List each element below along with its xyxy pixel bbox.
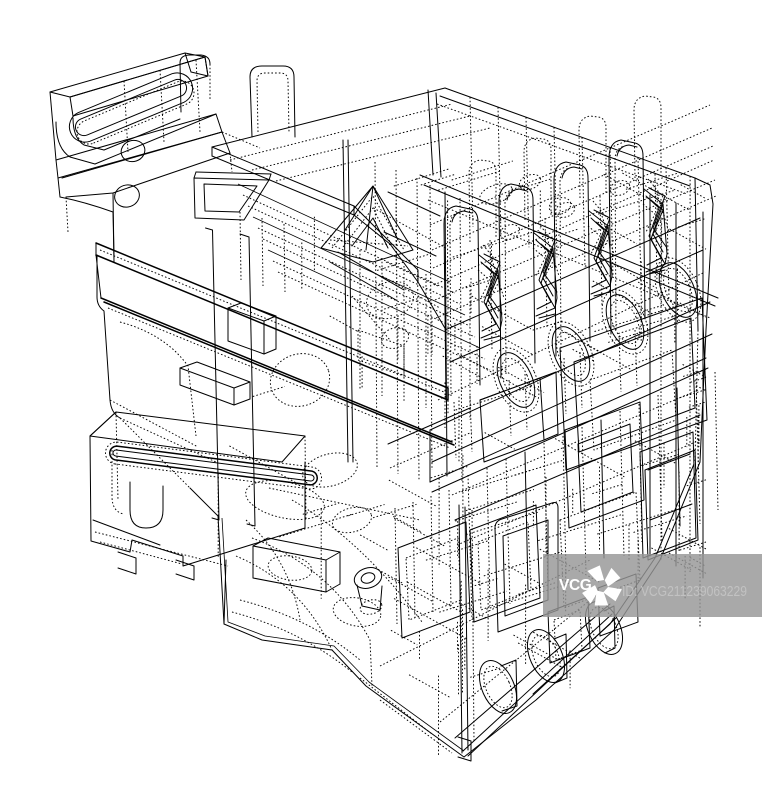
svg-text:ID: VCG211239063229: ID: VCG211239063229: [622, 584, 747, 600]
